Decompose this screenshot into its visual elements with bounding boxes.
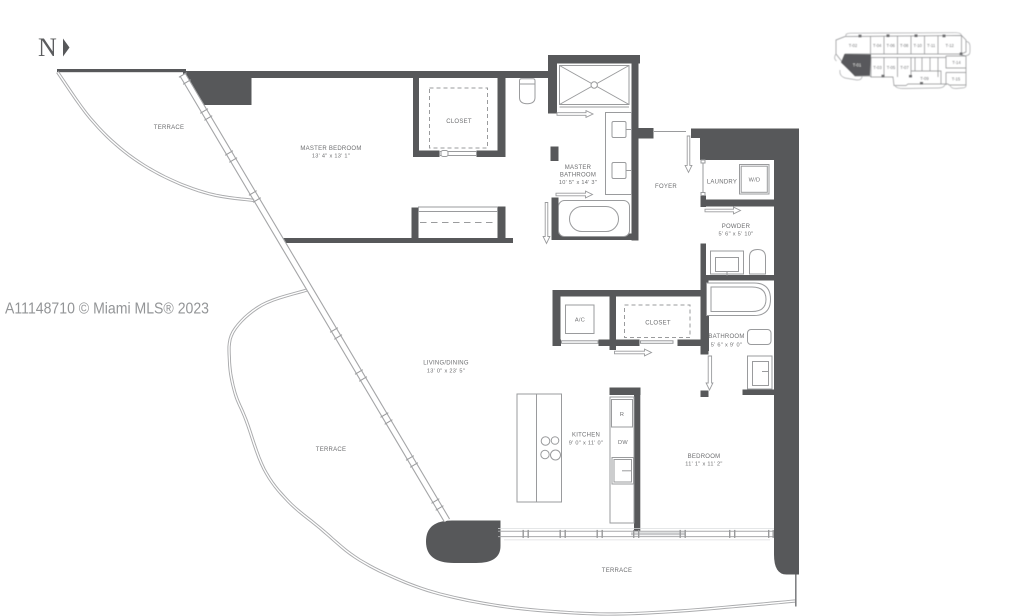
svg-text:A/C: A/C xyxy=(575,318,585,324)
svg-text:5' 6" x 9' 0": 5' 6" x 9' 0" xyxy=(711,343,742,349)
svg-text:T-11: T-11 xyxy=(927,43,936,48)
svg-text:13' 4" x 13' 1": 13' 4" x 13' 1" xyxy=(312,154,350,160)
svg-text:R: R xyxy=(620,412,624,418)
svg-text:T-12: T-12 xyxy=(946,43,955,48)
svg-text:T-04: T-04 xyxy=(873,43,882,48)
svg-text:BATHROOM: BATHROOM xyxy=(560,173,596,179)
svg-text:N: N xyxy=(38,33,57,62)
svg-text:W/D: W/D xyxy=(749,178,761,184)
svg-text:T-02: T-02 xyxy=(849,43,858,48)
svg-text:BATHROOM: BATHROOM xyxy=(708,334,744,340)
svg-text:13' 0" x 23' 5": 13' 0" x 23' 5" xyxy=(427,369,465,375)
svg-text:LIVING/DINING: LIVING/DINING xyxy=(423,361,469,367)
svg-text:TERRACE: TERRACE xyxy=(154,125,184,131)
svg-text:T-10: T-10 xyxy=(914,43,923,48)
svg-text:TERRACE: TERRACE xyxy=(316,447,346,453)
svg-text:T-09: T-09 xyxy=(920,76,929,81)
svg-text:T-05: T-05 xyxy=(887,65,896,70)
svg-text:9' 0" x 11' 0": 9' 0" x 11' 0" xyxy=(569,441,603,447)
svg-text:CLOSET: CLOSET xyxy=(645,321,671,327)
svg-text:MASTER: MASTER xyxy=(565,165,592,171)
svg-text:11' 1" x 11' 2": 11' 1" x 11' 2" xyxy=(685,462,722,468)
svg-text:T-08: T-08 xyxy=(900,43,909,48)
svg-text:KITCHEN: KITCHEN xyxy=(572,433,600,439)
svg-text:MASTER BEDROOM: MASTER BEDROOM xyxy=(300,146,361,152)
svg-text:FOYER: FOYER xyxy=(655,184,677,190)
svg-text:DW: DW xyxy=(618,440,628,446)
svg-text:T-06: T-06 xyxy=(887,43,896,48)
svg-text:T-01: T-01 xyxy=(853,63,862,68)
svg-text:POWDER: POWDER xyxy=(722,224,751,230)
svg-text:TERRACE: TERRACE xyxy=(602,568,632,574)
svg-text:CLOSET: CLOSET xyxy=(446,119,472,125)
svg-text:T-15: T-15 xyxy=(952,77,961,82)
svg-text:T-03: T-03 xyxy=(873,65,882,70)
svg-text:BEDROOM: BEDROOM xyxy=(688,454,721,460)
svg-text:T-14: T-14 xyxy=(952,60,961,65)
svg-text:T-07: T-07 xyxy=(900,65,909,70)
svg-text:10' 5" x 14' 3": 10' 5" x 14' 3" xyxy=(559,180,597,186)
svg-text:A11148710 © Miami MLS® 2023: A11148710 © Miami MLS® 2023 xyxy=(5,301,209,318)
svg-text:LAUNDRY: LAUNDRY xyxy=(707,180,737,186)
svg-text:5' 6" x 5' 10": 5' 6" x 5' 10" xyxy=(719,232,754,238)
